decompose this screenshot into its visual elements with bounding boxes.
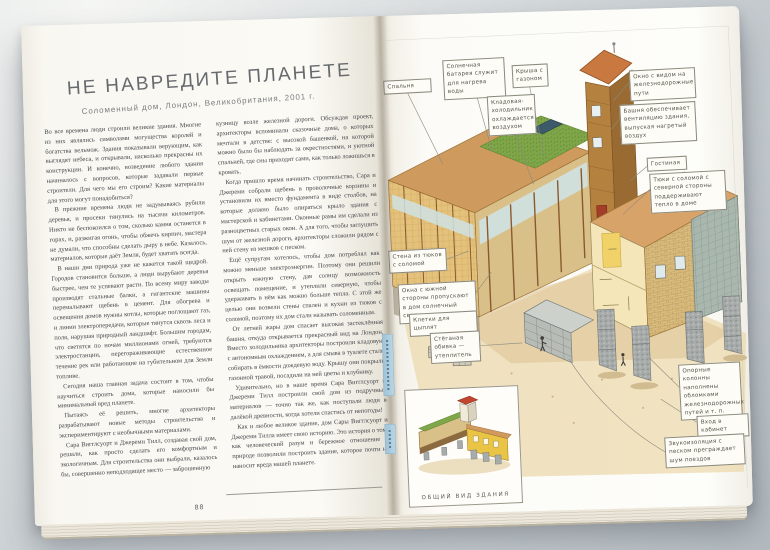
callout-sound-insulation: Звукоизоляция с песком преграждает шум п… [664, 433, 746, 468]
text-column-2: кузницу возле железной дороги. Обсуждая … [216, 112, 390, 472]
left-page: НЕ НАВРЕДИТЕ ПЛАНЕТЕ Соломенный дом, Лон… [21, 16, 394, 526]
callout-bedroom: Спальня [383, 78, 432, 95]
callout-larder: Кладовая-холодильник охлаждается воздухо… [487, 94, 537, 136]
callout-gabion-columns: Опорные колонны наполнены обломками желе… [678, 361, 743, 421]
page-number: 88 [195, 504, 205, 511]
chapter-edge-tab [382, 334, 395, 396]
callout-quilted-cladding: Стёганая обивка — утеплитель [430, 330, 482, 364]
overview-drawing [405, 386, 521, 485]
book-spread: НЕ НАВРЕДИТЕ ПЛАНЕТЕ Соломенный дом, Лон… [21, 6, 753, 526]
callout-straw-bale-wall: Стена из тюков с соломой [388, 248, 447, 274]
tab-text-marks [386, 340, 389, 390]
tab-text-marks [389, 430, 392, 448]
callout-lookout-window: Окно с видом на железнодорожные пути [629, 67, 697, 102]
photo-backdrop: НЕ НАВРЕДИТЕ ПЛАНЕТЕ Соломенный дом, Лон… [0, 0, 770, 550]
right-page: Спальня Солнечная батарея служит для наг… [380, 6, 753, 516]
chapter-end-rule [226, 487, 382, 496]
inset-caption: ОБЩИЙ ВИД ЗДАНИЯ [410, 491, 522, 502]
callout-ventilation-tower: Башня обеспечивает вентиляцию здания, вы… [619, 101, 697, 144]
callout-grass-roof: Крыша с газоном [512, 63, 549, 88]
text-column-1: Во все времена люди строили великие здан… [44, 120, 218, 480]
callout-living-room: Гостиная [647, 156, 688, 172]
chapter-edge-tab [384, 424, 396, 454]
callout-north-straw-bales: Тюки с соломой с северной стороны поддер… [649, 170, 727, 213]
building-illustration: Спальня Солнечная батарея служит для наг… [377, 4, 757, 519]
overview-inset: ОБЩИЙ ВИД ЗДАНИЯ [404, 385, 523, 508]
callout-solar-panel: Солнечная батарея служит для нагрева вод… [442, 57, 506, 100]
